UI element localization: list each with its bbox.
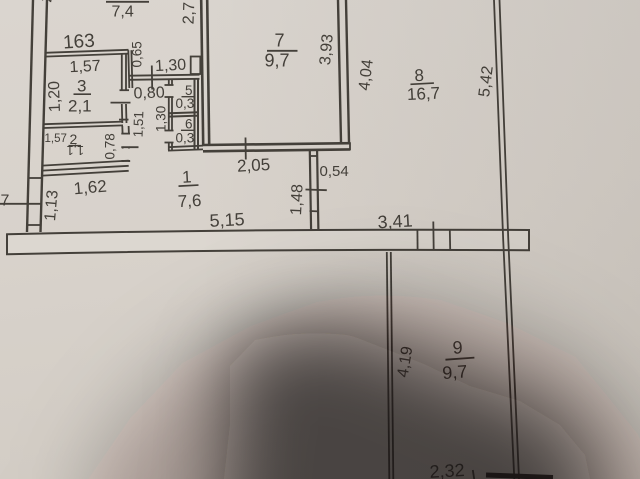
svg-text:2: 2 [38, 0, 56, 4]
svg-text:0,78: 0,78 [103, 133, 118, 159]
svg-text:7: 7 [275, 31, 285, 51]
svg-text:5,15: 5,15 [209, 209, 245, 231]
svg-text:8: 8 [414, 66, 424, 85]
svg-text:4,04: 4,04 [356, 58, 377, 91]
svg-text:2,05: 2,05 [237, 155, 271, 176]
svg-text:4,19: 4,19 [395, 345, 417, 379]
svg-text:3,93: 3,93 [317, 33, 337, 66]
svg-text:7,4: 7,4 [112, 4, 134, 21]
svg-text:0,80: 0,80 [133, 84, 165, 102]
svg-text:7: 7 [1, 193, 10, 210]
svg-text:0,3: 0,3 [176, 96, 195, 111]
svg-text:9,7: 9,7 [265, 51, 290, 71]
svg-text:5,42: 5,42 [476, 65, 497, 98]
svg-text:0,3: 0,3 [176, 131, 195, 146]
svg-text:1,30: 1,30 [154, 106, 169, 132]
svg-text:2,32: 2,32 [429, 460, 465, 479]
svg-text:1,20: 1,20 [46, 81, 64, 113]
svg-text:1,57: 1,57 [69, 58, 101, 77]
svg-text:1,30: 1,30 [155, 57, 187, 76]
svg-text:0,54: 0,54 [320, 163, 349, 180]
svg-text:1,57: 1,57 [45, 133, 67, 145]
svg-text:3: 3 [77, 77, 86, 96]
svg-text:1,51: 1,51 [131, 111, 147, 138]
svg-text:163: 163 [62, 30, 95, 53]
svg-text:1,1: 1,1 [67, 143, 84, 157]
svg-text:3,41: 3,41 [377, 211, 413, 233]
svg-text:0,65: 0,65 [130, 41, 145, 67]
svg-text:7,6: 7,6 [177, 191, 202, 211]
svg-text:1,48: 1,48 [288, 184, 307, 216]
svg-text:9: 9 [452, 337, 463, 358]
svg-text:16,7: 16,7 [406, 83, 440, 104]
svg-text:6: 6 [185, 117, 193, 132]
svg-text:1,13: 1,13 [42, 189, 62, 222]
svg-text:2,1: 2,1 [68, 97, 92, 116]
svg-text:1: 1 [182, 167, 192, 186]
svg-text:2,7: 2,7 [181, 2, 199, 25]
svg-text:1,62: 1,62 [73, 177, 108, 199]
svg-text:9,7: 9,7 [442, 361, 468, 383]
